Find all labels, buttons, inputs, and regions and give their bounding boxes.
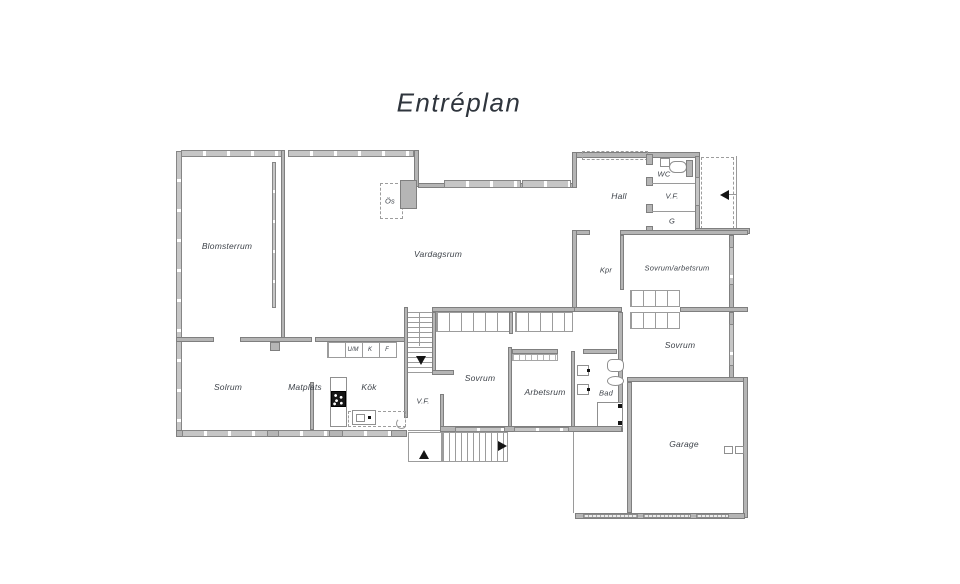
cabinet-row-icon <box>512 354 558 361</box>
window-vf-east <box>695 177 700 206</box>
room-label-arbetsrum: Arbetsrum <box>524 387 565 397</box>
wall-wc-south <box>652 183 695 184</box>
wall <box>432 370 454 375</box>
wall <box>440 394 444 430</box>
wall <box>509 312 513 334</box>
window-east-1 <box>729 247 734 285</box>
wardrobe-icon <box>515 312 573 332</box>
kitchen-unit-label-um: U/M <box>348 347 359 353</box>
garage-window-icon <box>735 446 744 454</box>
stove-icon <box>331 391 346 407</box>
room-label-kok: Kök <box>361 382 376 392</box>
toilet-icon <box>607 359 624 372</box>
wardrobe-icon <box>630 312 680 329</box>
room-label-kpr: Kpr <box>600 266 612 275</box>
wardrobe-icon <box>436 312 510 332</box>
glass-wall-blomsterrum <box>272 162 276 308</box>
entrance-arrow-icon <box>720 190 729 200</box>
wall-arbetsrum-east <box>571 351 575 430</box>
wall <box>572 307 622 312</box>
garage-window-icon <box>724 446 733 454</box>
room-label-vardagsrum: Vardagsrum <box>414 249 462 259</box>
wall <box>270 342 280 351</box>
chimney-icon <box>400 180 417 209</box>
room-label-g: G <box>669 217 675 226</box>
terrace-edge-line <box>573 432 574 513</box>
stair-down-arrow-icon <box>416 356 426 365</box>
sink-tap-icon <box>368 416 371 419</box>
kitchen-unit-label-k: K <box>368 347 372 353</box>
wall <box>686 160 693 177</box>
window-blomsterrum-north <box>181 150 283 157</box>
room-label-sovrum-mid: Sovrum <box>465 373 496 383</box>
wall <box>646 177 653 186</box>
window-solrum-south <box>182 430 268 437</box>
room-label-sovrum-right: Sovrum <box>665 340 696 350</box>
wall-kpr-east <box>620 235 624 290</box>
window-east-2 <box>729 324 734 366</box>
wall-garage-west <box>627 382 632 513</box>
bidet-sink-icon <box>607 376 624 386</box>
wall-bad-north <box>583 349 617 354</box>
room-label-os: Ös <box>385 197 395 206</box>
wall-kpr-west <box>572 230 577 312</box>
wardrobe-icon <box>630 290 680 307</box>
shower-hinge-icon <box>618 404 622 408</box>
wall-blomsterrum-east <box>281 150 285 342</box>
wall <box>646 154 653 165</box>
window-vardagsrum-east-2 <box>522 180 571 188</box>
sink-basin-icon <box>356 414 365 422</box>
window-vardagsrum-east-1 <box>444 180 521 188</box>
window-arbetsrum-south <box>514 427 569 432</box>
wall <box>680 307 748 312</box>
window-wall-west <box>176 151 182 437</box>
window-vardagsrum-north <box>288 150 414 157</box>
room-label-garage: Garage <box>669 439 699 449</box>
room-label-wc: WC <box>658 170 671 179</box>
room-label-bad: Bad <box>599 389 613 398</box>
room-label-matplats: Matplats <box>288 382 322 392</box>
room-label-blomsterrum: Blomsterrum <box>202 241 252 251</box>
door-threshold-line <box>408 430 440 431</box>
wall-g-north <box>652 211 695 212</box>
garage-door-icon <box>583 514 638 518</box>
steps-right-arrow-icon <box>498 441 507 451</box>
floorplan-canvas: Entréplan <box>0 0 960 584</box>
room-label-vf-upper: V.F. <box>665 192 678 201</box>
steps-up-arrow-icon <box>419 450 429 459</box>
wall <box>176 337 214 342</box>
room-label-sovrum-arbetsrum: Sovrum/arbetsrum <box>645 264 710 273</box>
entry-porch-dashed <box>701 157 734 229</box>
toilet-icon <box>669 161 687 173</box>
room-label-vf-lower: V.F. <box>416 397 429 406</box>
window-matplats-south <box>278 430 330 437</box>
wall-garage-north <box>627 377 748 382</box>
shower-hinge-icon <box>618 421 622 425</box>
garage-door-icon <box>696 514 729 518</box>
page-title: Entréplan <box>397 88 522 119</box>
room-label-solrum: Solrum <box>214 382 242 392</box>
washbasin-tap-icon <box>587 388 590 391</box>
washbasin-tap-icon <box>587 369 590 372</box>
window-kok-south <box>342 430 392 437</box>
entrance-arrow-line <box>729 194 737 195</box>
room-label-hall: Hall <box>611 191 626 201</box>
kitchen-unit-label-f: F <box>385 347 389 353</box>
stair-rail-line <box>419 312 420 346</box>
skylight-dashed <box>582 151 648 160</box>
garage-door-icon <box>643 514 691 518</box>
